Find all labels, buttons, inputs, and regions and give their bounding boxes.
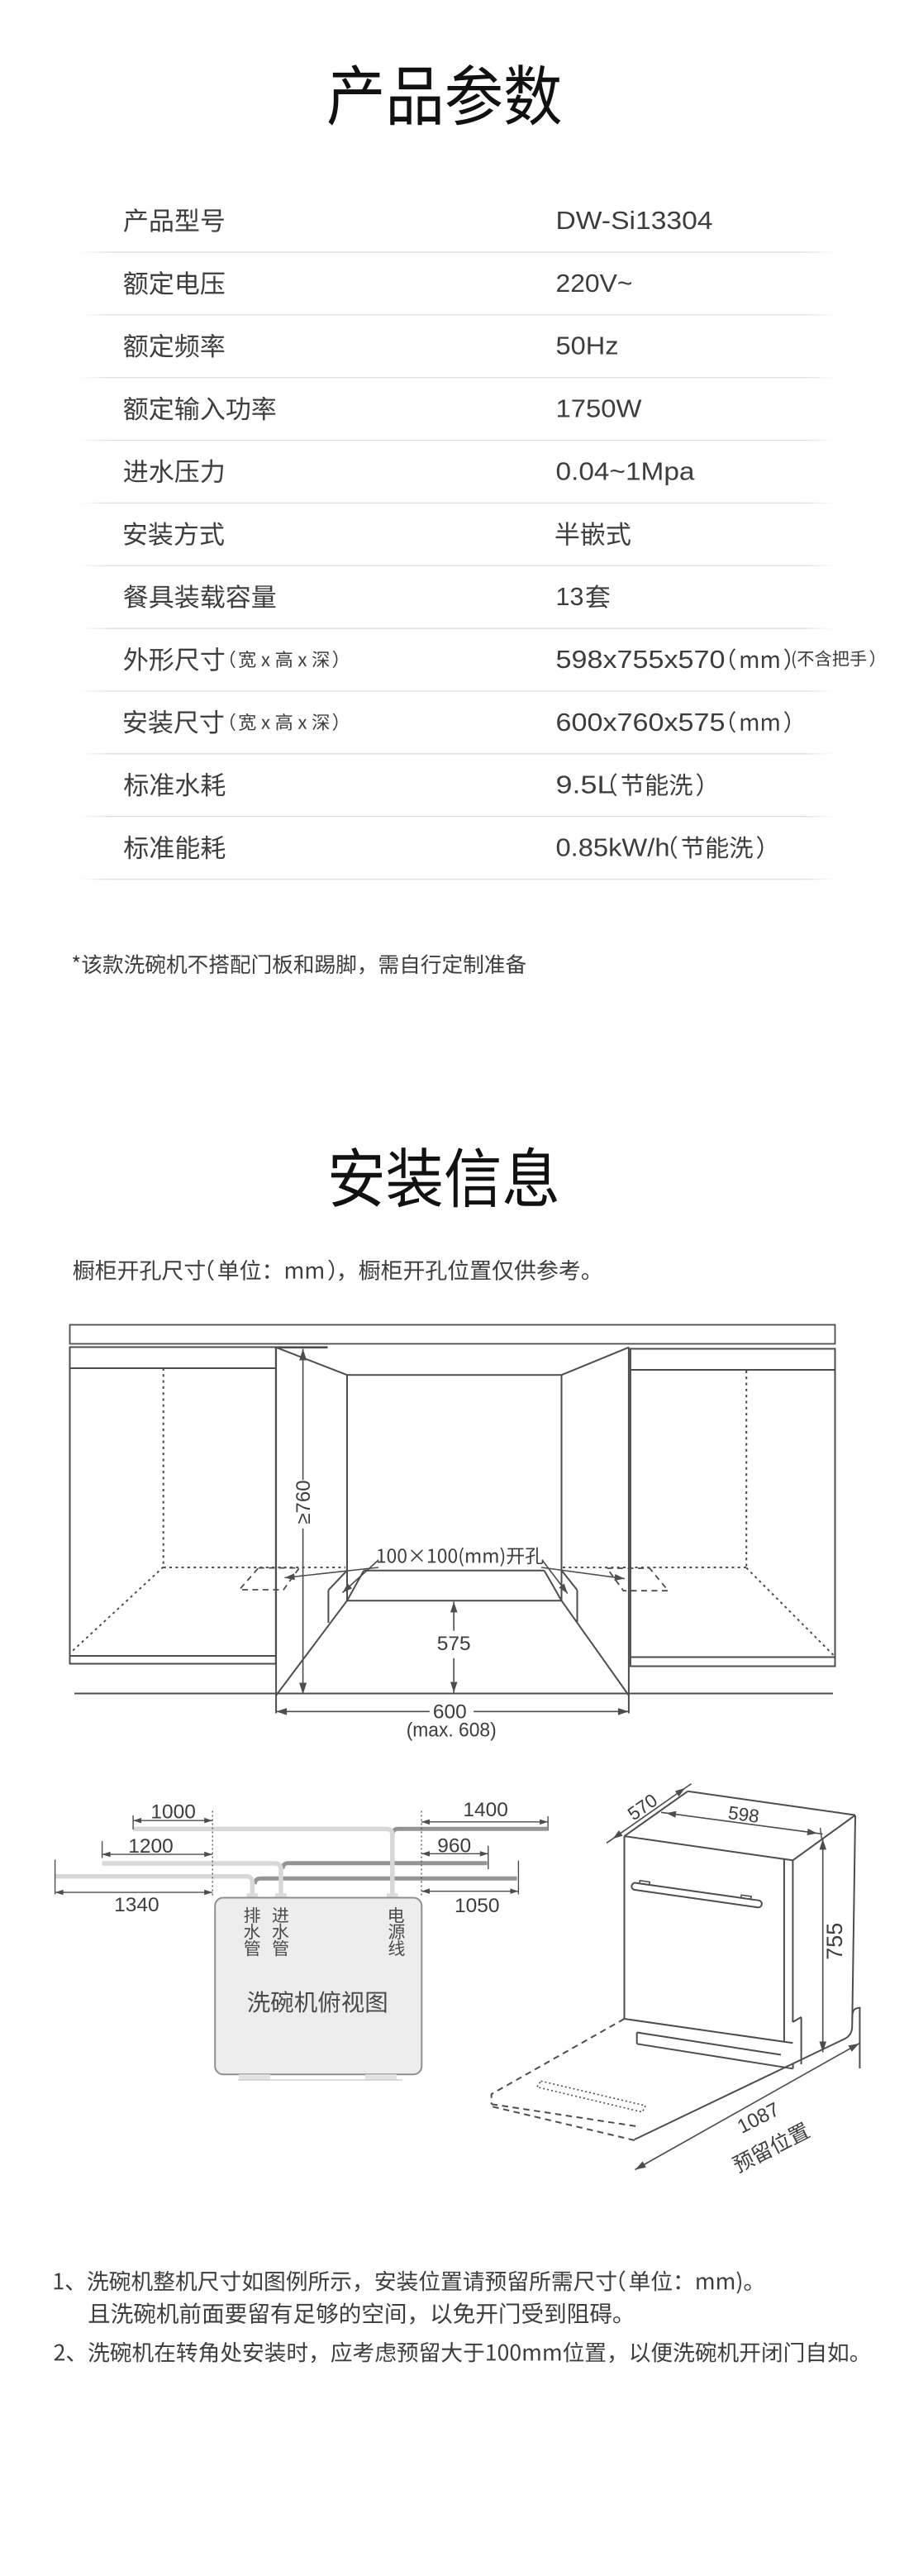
svg-text:598: 598 xyxy=(727,1802,761,1827)
svg-text:1400: 1400 xyxy=(463,1799,508,1821)
svg-text:600x760x575: 600x760x575 xyxy=(556,708,726,737)
svg-text:≥760: ≥760 xyxy=(293,1480,315,1524)
svg-text:1340: 1340 xyxy=(114,1894,159,1916)
svg-text:570: 570 xyxy=(624,1790,661,1825)
svg-text:575: 575 xyxy=(437,1633,471,1655)
svg-text:220V~: 220V~ xyxy=(556,270,633,298)
svg-text:1200: 1200 xyxy=(128,1835,174,1858)
svg-text:1087: 1087 xyxy=(734,2098,783,2138)
svg-text:960: 960 xyxy=(437,1835,471,1858)
svg-text:0.04~1Mpa: 0.04~1Mpa xyxy=(556,457,695,485)
svg-text:9.5L: 9.5L xyxy=(556,771,614,799)
svg-text:1050: 1050 xyxy=(454,1895,500,1917)
svg-text:598x755x570: 598x755x570 xyxy=(556,646,726,674)
svg-text:13: 13 xyxy=(556,583,584,611)
svg-text:DW-Si13304: DW-Si13304 xyxy=(556,207,713,235)
svg-text:0.85kW/h: 0.85kW/h xyxy=(556,834,670,862)
svg-text:50Hz: 50Hz xyxy=(556,332,619,360)
svg-text:1750W: 1750W xyxy=(556,395,642,423)
svg-text:1000: 1000 xyxy=(150,1801,196,1824)
svg-text:755: 755 xyxy=(822,1923,847,1960)
svg-text:(max. 608): (max. 608) xyxy=(407,1720,497,1742)
